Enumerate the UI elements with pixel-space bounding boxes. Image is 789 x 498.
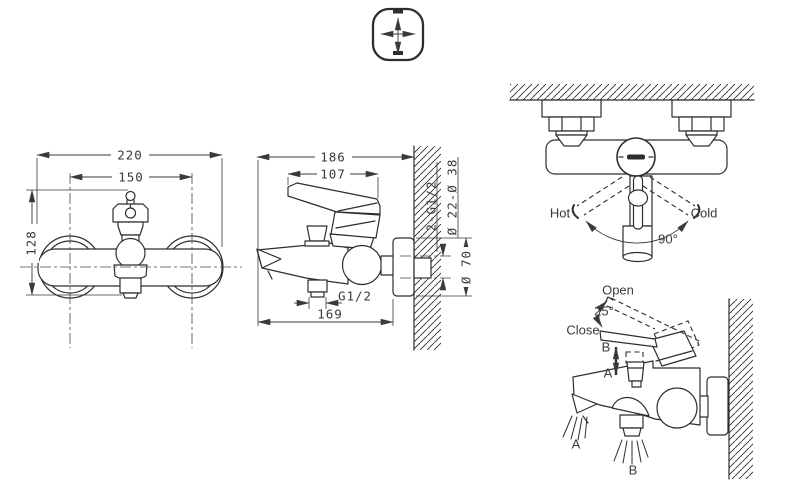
spout-front (120, 278, 141, 293)
front-view: 220 150 128 (20, 148, 242, 349)
dim-spacing: 150 (118, 170, 144, 185)
spout-tip-front (123, 293, 138, 298)
dim-width: 220 (117, 148, 143, 163)
side-view: 186 107 169 G1/2 Ø 70 2-G1/2 Ø 22-Ø 38 (257, 146, 474, 350)
lever-ghost-left (577, 177, 622, 206)
right-mount-nut (679, 117, 724, 131)
diverter-knob (627, 362, 644, 381)
label-diverter-pull: B (602, 340, 611, 355)
lever-open-ghost (607, 306, 655, 329)
shower-outlet (620, 415, 643, 428)
diverter-knob-side (307, 226, 327, 241)
aerator-tick (268, 271, 272, 279)
shower-outlet-side (308, 280, 327, 292)
dim-inlet-threads: 2-G1/2 (424, 180, 439, 231)
label-spout-flow: A (572, 437, 581, 452)
lever-ghost-left (584, 186, 629, 215)
right-mount-plate (672, 100, 731, 117)
dim-depth: 186 (320, 150, 346, 165)
label-hot: Hot (550, 206, 571, 221)
dim-cover-range: Ø 22-Ø 38 (445, 159, 460, 236)
ceiling-hatch (510, 84, 754, 100)
dim-lever: 107 (320, 167, 346, 182)
wall-connector (381, 256, 394, 275)
wall-flange-side (393, 238, 414, 296)
handle-screw (126, 192, 135, 201)
label-lift-angle: 25° (594, 304, 614, 319)
ghost-tip (573, 205, 578, 218)
brand-mark (627, 155, 645, 160)
operation-view: Open 25° Close B A A B (563, 283, 753, 480)
dim-height: 128 (24, 230, 39, 256)
shower-nipple (623, 428, 641, 436)
dim-spout-depth: 169 (317, 307, 343, 322)
valve-body-side (343, 246, 382, 285)
rotation-view: Hot Cold 90° (510, 84, 754, 262)
spout-mouth (623, 253, 652, 262)
lever-handle-side (288, 183, 380, 214)
diverter-collar (305, 241, 329, 246)
label-close: Close (566, 323, 599, 338)
knob-stem (632, 381, 641, 387)
label-diverter-push: A (604, 366, 613, 381)
cartridge-ball (116, 239, 145, 268)
shower-spray-lines (614, 440, 648, 464)
handle-neck (118, 222, 143, 235)
left-mount-nut (549, 117, 594, 131)
faucet-installation-drawing: 220 150 128 (0, 0, 789, 498)
handle-top-mark (393, 10, 403, 14)
wall-flange (707, 377, 728, 435)
label-swivel-angle: 90° (658, 232, 678, 247)
label-shower-flow: B (629, 463, 638, 478)
label-cold: Cold (691, 206, 718, 221)
dim-outlet-thread: G1/2 (338, 289, 372, 304)
lever-pivot (629, 190, 648, 206)
inlet-union (414, 258, 431, 278)
handle-block-hole (126, 208, 136, 218)
dim-flange-diameter: Ø 70 (459, 250, 474, 284)
lever-ghost-right (650, 177, 695, 206)
handle-top-view (373, 9, 423, 60)
wall-hatch (729, 299, 753, 479)
outlet-nipple (311, 292, 324, 297)
technical-drawing-page: 220 150 128 (0, 0, 789, 498)
diverter-ghost (626, 352, 643, 363)
left-mount-plate (542, 100, 601, 117)
label-open: Open (602, 283, 634, 298)
valve-body-operation (657, 388, 697, 428)
